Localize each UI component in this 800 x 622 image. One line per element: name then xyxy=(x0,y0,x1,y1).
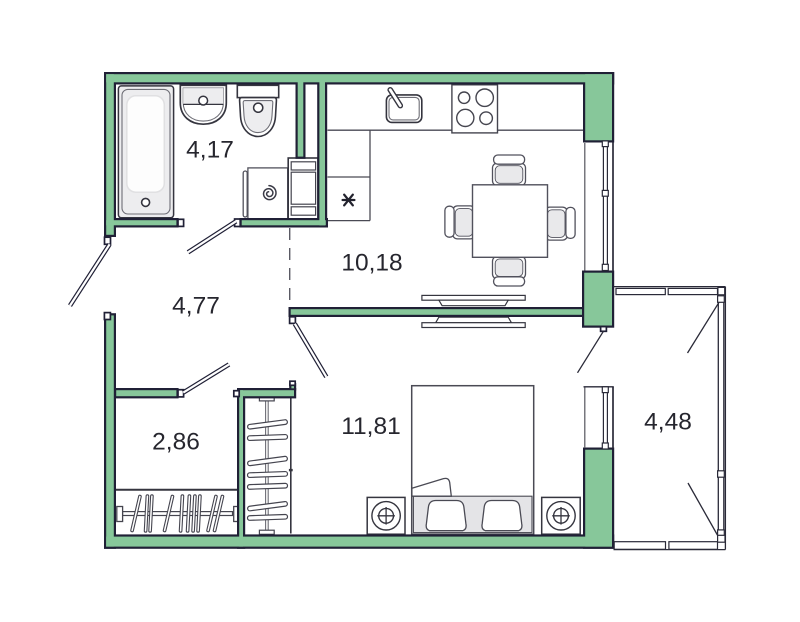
svg-text:2,86: 2,86 xyxy=(152,429,200,456)
svg-text:4,77: 4,77 xyxy=(172,293,220,320)
svg-text:10,18: 10,18 xyxy=(341,250,402,277)
svg-text:4,17: 4,17 xyxy=(186,137,234,164)
svg-text:4,48: 4,48 xyxy=(644,409,692,436)
svg-text:11,81: 11,81 xyxy=(341,413,401,440)
